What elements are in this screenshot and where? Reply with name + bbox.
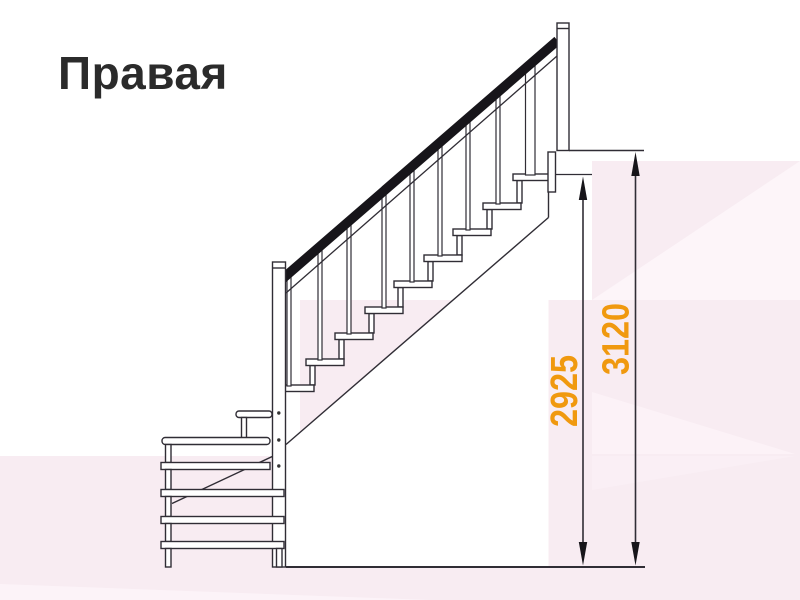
winder-tread bbox=[162, 438, 270, 445]
winder-tread bbox=[161, 542, 284, 549]
dimension-label-3120: 3120 bbox=[596, 303, 638, 375]
screw-dot bbox=[277, 438, 280, 441]
riser bbox=[428, 262, 433, 282]
winder-leg bbox=[166, 445, 172, 463]
winder-leg bbox=[166, 470, 172, 490]
winder-leg bbox=[277, 549, 283, 568]
riser bbox=[339, 340, 344, 360]
riser bbox=[487, 210, 492, 230]
dimension-label-2925: 2925 bbox=[544, 355, 586, 427]
winder-leg bbox=[166, 497, 172, 517]
riser bbox=[457, 236, 462, 256]
winder-leg bbox=[166, 524, 172, 542]
tread bbox=[335, 333, 373, 340]
winder-leg bbox=[166, 549, 172, 568]
tread bbox=[483, 203, 521, 210]
staircase-drawing-page: 2925 3120 Правая bbox=[0, 0, 800, 600]
upper-newel-post bbox=[557, 23, 569, 151]
riser bbox=[517, 181, 522, 204]
tread bbox=[424, 255, 462, 262]
riser bbox=[398, 288, 403, 308]
top-riser-board bbox=[548, 152, 556, 192]
winder-tread bbox=[161, 517, 284, 524]
screw-dot bbox=[277, 411, 280, 414]
winder-leg bbox=[242, 418, 247, 439]
tread bbox=[306, 359, 344, 366]
riser bbox=[310, 366, 315, 386]
riser bbox=[369, 314, 374, 334]
winder-tread bbox=[236, 411, 272, 418]
winder-tread bbox=[161, 463, 270, 470]
winder-tread bbox=[161, 490, 284, 497]
screw-dot bbox=[277, 464, 280, 467]
tread bbox=[453, 229, 491, 236]
page-title: Правая bbox=[58, 50, 228, 96]
